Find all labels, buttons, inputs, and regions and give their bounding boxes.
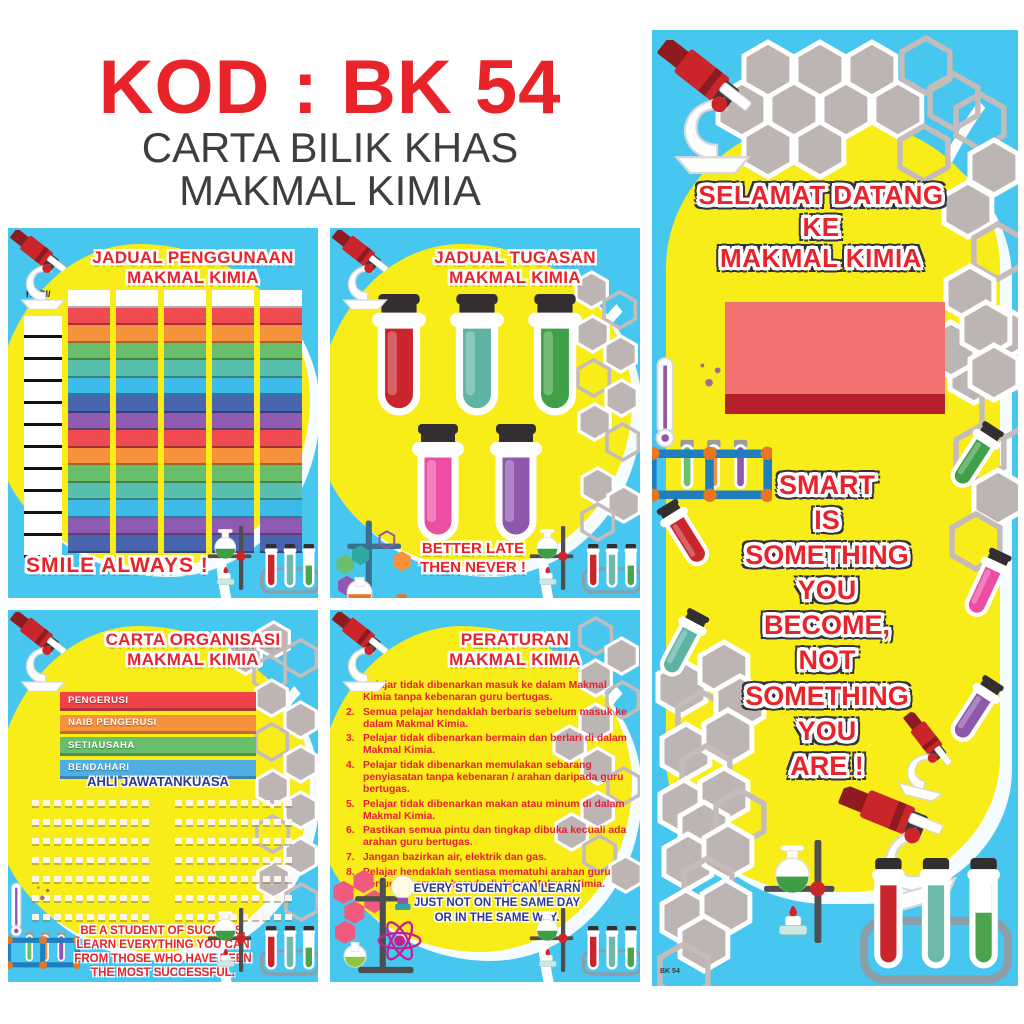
timetable-cell	[68, 448, 110, 466]
product-code: KOD : BK 54	[50, 50, 610, 126]
rule-number: 4.	[346, 760, 363, 796]
hexagon-icon	[680, 916, 728, 971]
timetable-cell	[116, 535, 158, 553]
timetable-cell	[68, 465, 110, 483]
timetable-cell	[260, 448, 302, 466]
blank-line	[175, 876, 294, 882]
panel3-title: CARTA ORGANISASIMAKMAL KIMIA	[76, 630, 310, 671]
timetable-cell	[212, 360, 254, 378]
rules-list: 1.Pelajar tidak dibenarkan masuk ke dala…	[346, 680, 632, 894]
timetable-cell	[68, 500, 110, 518]
test-tube-icon	[524, 294, 586, 428]
org-bar-label: BENDAHARI	[68, 762, 130, 773]
blank-line	[175, 895, 294, 901]
rule-text: Pelajar tidak dibenarkan makan atau minu…	[363, 799, 632, 823]
timetable-cell	[116, 378, 158, 396]
hexagon-icon	[684, 858, 732, 913]
rule-number: 5.	[346, 799, 363, 823]
timetable-cell	[164, 378, 206, 396]
poster-code-label: BK 54	[660, 968, 680, 975]
timetable-cell	[164, 430, 206, 448]
test-tube-icon	[446, 294, 508, 428]
text-line: IS	[710, 503, 944, 538]
timetable-cell	[116, 483, 158, 501]
rule-number: 7.	[346, 852, 363, 864]
rule-item: 2.Semua pelajar hendaklah berbaris sebel…	[346, 707, 632, 731]
timetable-cell	[116, 343, 158, 361]
panel1-title: JADUAL PENGGUNAANMAKMAL KIMIA	[76, 248, 310, 289]
timetable-day-cell	[24, 448, 62, 470]
org-bar: SETIAUSAHA	[60, 737, 256, 756]
timetable-cell	[260, 395, 302, 413]
panel-jadual-penggunaan: JADUAL PENGGUNAANMAKMAL KIMIA HARI/MASA …	[8, 228, 318, 598]
committee-subtitle: AHLI JAWATANKUASA	[48, 774, 268, 789]
test-tube-rack-icon	[860, 858, 1012, 985]
panel2-title: JADUAL TUGASANMAKMAL KIMIA	[398, 248, 632, 289]
timetable-day-cell	[24, 360, 62, 382]
timetable-cell	[212, 413, 254, 431]
blank-line	[175, 819, 294, 825]
text-line: SMART	[710, 468, 944, 503]
test-tube-rack-icon	[582, 544, 640, 594]
text-line: NOT	[710, 643, 944, 678]
timetable-cell	[212, 448, 254, 466]
timetable-day-cell	[24, 426, 62, 448]
timetable-cell	[116, 465, 158, 483]
flask-stand-icon	[204, 526, 256, 590]
timetable-day-cell	[24, 404, 62, 426]
test-tube-icon	[368, 294, 430, 428]
text-line: SELAMAT DATANG	[668, 180, 974, 212]
product-subtitle-line1: CARTA BILIK KHAS	[50, 126, 610, 169]
timetable-cell	[68, 483, 110, 501]
organisation-chart: PENGERUSINAIB PENGERUSISETIAUSAHABENDAHA…	[60, 692, 256, 782]
rule-number: 3.	[346, 733, 363, 757]
timetable-cell	[116, 360, 158, 378]
timetable-day-cell	[24, 492, 62, 514]
hexagon-icon	[902, 38, 950, 93]
welcome-text: SELAMAT DATANGKEMAKMAL KIMIA	[668, 180, 974, 275]
hexagon-icon	[660, 944, 708, 986]
text-line: KE	[668, 212, 974, 244]
panel4-title: PERATURANMAKMAL KIMIA	[398, 630, 632, 671]
timetable-cell	[260, 343, 302, 361]
timetable-cell	[212, 290, 254, 308]
flask-stand-icon	[526, 526, 578, 590]
hexagon-icon	[702, 880, 750, 935]
text-line: BECOME,	[710, 608, 944, 643]
microscope-icon	[330, 612, 404, 693]
timetable-day-cell	[24, 316, 62, 338]
timetable-day-cell	[24, 338, 62, 360]
text-line: EVERY STUDENT CAN LEARN	[404, 882, 590, 896]
flask-stand-icon	[526, 908, 578, 972]
timetable-cell	[68, 325, 110, 343]
hexagon-icon	[796, 42, 844, 97]
blank-line	[32, 819, 151, 825]
org-bar: NAIB PENGERUSI	[60, 715, 256, 734]
timetable-cell	[116, 413, 158, 431]
timetable-cell	[164, 500, 206, 518]
timetable-cell	[116, 325, 158, 343]
timetable-left-column	[24, 316, 62, 558]
timetable-cell	[212, 500, 254, 518]
timetable-cell	[68, 360, 110, 378]
timetable-cell	[116, 290, 158, 308]
timetable-cell	[260, 290, 302, 308]
timetable-cell	[116, 395, 158, 413]
org-bar-label: SETIAUSAHA	[68, 740, 135, 751]
timetable-cell	[164, 360, 206, 378]
poster-selamat-datang: SELAMAT DATANGKEMAKMAL KIMIA SMARTISSOME…	[652, 30, 1018, 986]
timetable-cell	[260, 360, 302, 378]
text-line: SOMETHING	[710, 538, 944, 573]
poster-catalog-image: KOD : BK 54 CARTA BILIK KHAS MAKMAL KIMI…	[0, 0, 1024, 1024]
timetable-cell	[260, 325, 302, 343]
timetable-cell	[68, 378, 110, 396]
timetable-cell	[116, 500, 158, 518]
timetable-grid	[68, 290, 302, 553]
flask-stand-icon	[758, 840, 842, 943]
flask-stand-icon	[204, 908, 256, 972]
timetable-cell	[116, 518, 158, 536]
hexagon-icon	[848, 42, 896, 97]
timetable-cell	[164, 343, 206, 361]
hexagon-icon	[662, 890, 710, 945]
timetable-cell	[212, 483, 254, 501]
timetable-cell	[260, 518, 302, 536]
rule-text: Semua pelajar hendaklah berbaris sebelum…	[363, 707, 632, 731]
microscope-icon	[330, 230, 404, 311]
org-bar: PENGERUSI	[60, 692, 256, 711]
panel-carta-organisasi: CARTA ORGANISASIMAKMAL KIMIA PENGERUSINA…	[8, 610, 318, 982]
microscope-icon	[8, 612, 82, 693]
timetable-cell	[164, 465, 206, 483]
org-bar-label: NAIB PENGERUSI	[68, 717, 157, 728]
timetable-cell	[260, 500, 302, 518]
timetable-cell	[164, 308, 206, 326]
blank-line	[175, 838, 294, 844]
timetable-cell	[164, 413, 206, 431]
timetable-cell	[116, 448, 158, 466]
org-bar-label: PENGERUSI	[68, 695, 128, 706]
timetable-column	[212, 290, 254, 553]
rule-item: 6.Pastikan semua pintu dan tingkap dibuk…	[346, 825, 632, 849]
microscope-icon	[654, 40, 778, 175]
timetable-column	[260, 290, 302, 553]
text-line: SOMETHING	[710, 679, 944, 714]
timetable-cell	[212, 465, 254, 483]
test-tube-rack-icon	[582, 926, 640, 976]
blank-line	[32, 857, 151, 863]
rule-item: 5.Pelajar tidak dibenarkan makan atau mi…	[346, 799, 632, 823]
timetable-day-cell	[24, 382, 62, 404]
timetable-cell	[212, 395, 254, 413]
rule-item: 7.Jangan bazirkan air, elektrik dan gas.	[346, 852, 632, 864]
timetable-cell	[260, 465, 302, 483]
timetable-cell	[68, 430, 110, 448]
blank-line	[32, 800, 151, 806]
timetable-column	[68, 290, 110, 553]
duty-test-tubes-row1	[368, 294, 586, 433]
timetable-cell	[212, 343, 254, 361]
timetable-cell	[164, 290, 206, 308]
blank-line	[175, 800, 294, 806]
smile-footer-text: SMILE ALWAYS !	[26, 554, 209, 578]
microscope-icon	[8, 230, 82, 311]
timetable-column	[164, 290, 206, 553]
rule-text: Jangan bazirkan air, elektrik dan gas.	[363, 852, 547, 864]
timetable-cell	[68, 413, 110, 431]
timetable-cell	[164, 535, 206, 553]
timetable-cell	[164, 325, 206, 343]
panel-jadual-tugasan: JADUAL TUGASANMAKMAL KIMIA BETTER LATETH…	[330, 228, 640, 598]
timetable-cell	[212, 308, 254, 326]
timetable-cell	[68, 343, 110, 361]
timetable-cell	[212, 325, 254, 343]
timetable-cell	[260, 430, 302, 448]
timetable-day-cell	[24, 470, 62, 492]
test-tube	[524, 294, 586, 433]
text-line: MAKMAL KIMIA	[668, 243, 974, 275]
rule-number: 2.	[346, 707, 363, 731]
timetable-cell	[212, 378, 254, 396]
rule-number: 6.	[346, 825, 363, 849]
timetable-day-cell	[24, 514, 62, 536]
timetable-cell	[164, 483, 206, 501]
rule-item: 4.Pelajar tidak dibenarkan memulakan seb…	[346, 760, 632, 796]
product-subtitle-line2: MAKMAL KIMIA	[50, 169, 610, 212]
timetable-cell	[68, 518, 110, 536]
test-tube-rack-icon	[260, 544, 318, 594]
panel-peraturan: PERATURANMAKMAL KIMIA 1.Pelajar tidak di…	[330, 610, 640, 982]
timetable-column	[116, 290, 158, 553]
timetable-cell	[260, 378, 302, 396]
timetable-cell	[164, 448, 206, 466]
text-line: YOU	[710, 573, 944, 608]
timetable-cell	[68, 395, 110, 413]
test-tube	[368, 294, 430, 433]
timetable-cell	[164, 518, 206, 536]
timetable-cell	[260, 308, 302, 326]
rule-text: Pelajar tidak dibenarkan memulakan sebar…	[363, 760, 632, 796]
blank-line	[175, 857, 294, 863]
timetable-cell	[212, 430, 254, 448]
rule-item: 3.Pelajar tidak dibenarkan bermain dan b…	[346, 733, 632, 757]
timetable-cell	[116, 308, 158, 326]
timetable-cell	[68, 535, 110, 553]
rule-text: Pastikan semua pintu dan tingkap dibuka …	[363, 825, 632, 849]
timetable-cell	[116, 430, 158, 448]
catalog-header: KOD : BK 54 CARTA BILIK KHAS MAKMAL KIMI…	[50, 50, 610, 213]
test-tube-rack-icon	[260, 926, 318, 976]
rule-text: Pelajar tidak dibenarkan bermain dan ber…	[363, 733, 632, 757]
blank-line	[32, 838, 151, 844]
timetable-cell	[260, 483, 302, 501]
test-tube	[446, 294, 508, 433]
timetable-cell	[260, 413, 302, 431]
timetable-cell	[164, 395, 206, 413]
